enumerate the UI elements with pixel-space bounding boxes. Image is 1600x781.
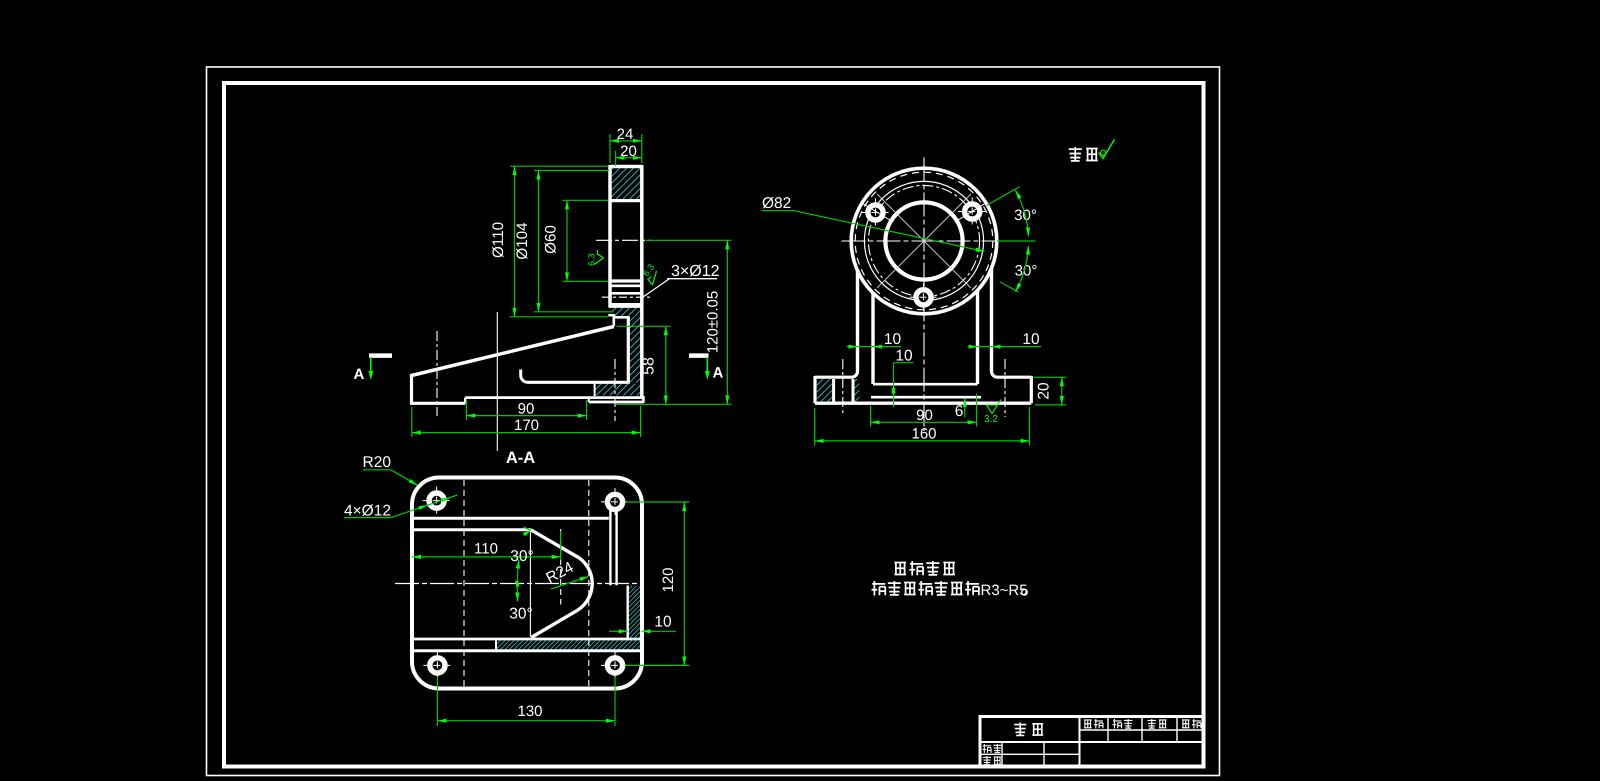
svg-text:120±0.05: 120±0.05 bbox=[705, 291, 722, 353]
svg-text:24: 24 bbox=[617, 126, 634, 143]
svg-text:90: 90 bbox=[916, 407, 933, 424]
svg-text:A: A bbox=[713, 365, 724, 382]
svg-text:A-A: A-A bbox=[506, 449, 535, 467]
svg-text:Ø60: Ø60 bbox=[543, 225, 560, 254]
svg-text:10: 10 bbox=[884, 331, 902, 348]
svg-text:Ø110: Ø110 bbox=[490, 222, 507, 258]
svg-text:110: 110 bbox=[474, 541, 498, 558]
svg-text:160: 160 bbox=[911, 426, 936, 443]
svg-text:10: 10 bbox=[895, 348, 913, 365]
svg-text:170: 170 bbox=[514, 417, 539, 434]
svg-text:A: A bbox=[354, 366, 365, 383]
svg-text:Ø82: Ø82 bbox=[762, 195, 791, 212]
svg-text:3.2: 3.2 bbox=[984, 414, 998, 425]
svg-text:Ø104: Ø104 bbox=[514, 222, 531, 259]
svg-text:10: 10 bbox=[654, 614, 672, 631]
svg-text:90: 90 bbox=[518, 401, 535, 418]
svg-text:6: 6 bbox=[955, 403, 964, 420]
svg-text:120: 120 bbox=[660, 567, 677, 592]
svg-text:20: 20 bbox=[1036, 382, 1053, 400]
svg-text:30°: 30° bbox=[510, 548, 533, 565]
svg-text:130: 130 bbox=[517, 703, 542, 720]
svg-text:4×Ø12: 4×Ø12 bbox=[344, 502, 391, 519]
svg-text:10: 10 bbox=[1022, 331, 1040, 348]
svg-text:6.3: 6.3 bbox=[587, 253, 597, 266]
svg-text:R20: R20 bbox=[363, 454, 392, 471]
svg-text:30°: 30° bbox=[509, 606, 532, 623]
svg-text:R3~R5: R3~R5 bbox=[981, 582, 1028, 599]
svg-text:20: 20 bbox=[620, 143, 637, 160]
svg-text:58: 58 bbox=[641, 357, 658, 375]
svg-text:3×Ø12: 3×Ø12 bbox=[671, 263, 720, 280]
